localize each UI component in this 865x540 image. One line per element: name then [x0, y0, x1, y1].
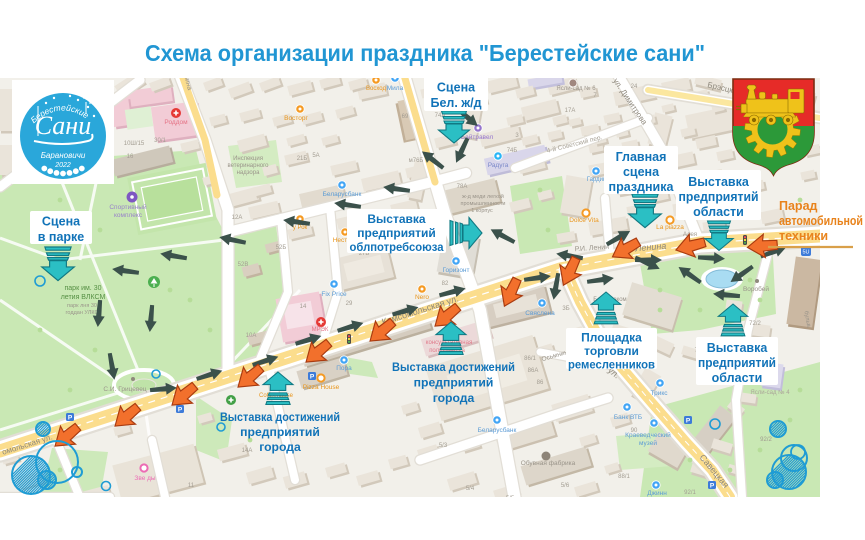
svg-text:69: 69 [402, 114, 409, 120]
svg-text:5/4: 5/4 [466, 486, 475, 492]
svg-text:29: 29 [346, 301, 353, 307]
svg-text:годдан УЛКС: годдан УЛКС [66, 310, 99, 316]
svg-text:24: 24 [631, 84, 638, 90]
svg-text:Сцена: Сцена [42, 215, 81, 229]
svg-text:78А: 78А [457, 184, 468, 190]
svg-text:Ясли-сад № 6: Ясли-сад № 6 [556, 85, 596, 92]
svg-text:комплекс: комплекс [114, 212, 143, 219]
svg-text:надзора: надзора [237, 170, 261, 176]
svg-text:города: города [259, 440, 301, 454]
svg-text:области: области [712, 371, 763, 385]
svg-text:Свяслена: Свяслена [525, 310, 555, 317]
svg-text:Воробей: Воробей [743, 285, 769, 293]
svg-text:промышленности: промышленности [461, 201, 506, 207]
svg-text:Выставка достижений: Выставка достижений [392, 360, 515, 374]
svg-text:Выставка: Выставка [707, 341, 769, 355]
svg-text:Схема организации праздника "Б: Схема организации праздника "Берестейски… [145, 40, 705, 66]
svg-text:74Б: 74Б [507, 148, 518, 154]
svg-text:автомобильной: автомобильной [779, 214, 863, 228]
svg-text:5А: 5А [312, 153, 319, 159]
svg-text:21Б: 21Б [297, 156, 308, 162]
svg-text:2022: 2022 [54, 162, 71, 169]
svg-text:P: P [710, 483, 715, 490]
svg-text:72/2: 72/2 [749, 321, 761, 327]
svg-text:Трикс: Трикс [650, 390, 668, 397]
svg-text:86: 86 [537, 380, 544, 386]
svg-text:17А: 17А [565, 108, 576, 114]
svg-text:Nero: Nero [415, 294, 429, 301]
svg-text:52Б: 52Б [276, 245, 287, 251]
svg-text:ветеринарного: ветеринарного [228, 163, 270, 169]
svg-text:Восторг: Восторг [284, 115, 308, 122]
svg-text:Выставка: Выставка [367, 212, 426, 226]
svg-text:праздника: праздника [609, 180, 675, 194]
svg-text:1 корпус: 1 корпус [471, 208, 493, 214]
svg-text:Барановичи: Барановичи [41, 151, 86, 160]
svg-text:P: P [310, 374, 315, 381]
svg-text:Обувная фабрика: Обувная фабрика [521, 459, 576, 467]
svg-text:предприятий: предприятий [240, 425, 320, 439]
svg-text:Сани: Сани [35, 111, 91, 140]
svg-text:Пора: Пора [336, 365, 352, 372]
svg-text:14: 14 [300, 304, 307, 310]
svg-text:торговли: торговли [584, 344, 639, 358]
svg-text:облпотребсоюза: облпотребсоюза [350, 240, 444, 254]
svg-text:52В: 52В [238, 262, 249, 268]
svg-text:3Б: 3Б [562, 306, 569, 312]
svg-text:Сцена: Сцена [437, 81, 476, 95]
svg-text:5/3: 5/3 [439, 443, 448, 449]
svg-text:P: P [178, 407, 183, 414]
svg-text:Радуга: Радуга [488, 162, 509, 169]
svg-text:Выставка: Выставка [688, 175, 750, 189]
svg-text:P: P [686, 418, 691, 425]
svg-text:Джинн: Джинн [647, 490, 667, 497]
svg-text:предприятий: предприятий [357, 226, 435, 240]
svg-text:11: 11 [188, 483, 195, 489]
svg-text:Fix Price: Fix Price [321, 291, 347, 298]
svg-text:в парке: в парке [38, 230, 85, 244]
svg-text:Мила: Мила [387, 85, 404, 92]
svg-text:предприятий: предприятий [679, 190, 759, 204]
svg-text:30/1: 30/1 [154, 138, 166, 144]
svg-text:Роддом: Роддом [164, 119, 188, 126]
svg-text:ж-д меди легкой: ж-д меди легкой [462, 193, 504, 200]
svg-text:Горизонт: Горизонт [442, 267, 469, 274]
svg-text:ремесленников: ремесленников [568, 357, 655, 371]
svg-text:12А: 12А [232, 215, 243, 221]
svg-text:Восход: Восход [366, 86, 386, 92]
svg-text:16: 16 [127, 154, 134, 160]
svg-text:Алея: Алея [683, 232, 697, 238]
svg-text:Беларусбанк: Беларусбанк [478, 426, 517, 434]
svg-text:м76Б: м76Б [409, 158, 424, 164]
svg-text:Площадка: Площадка [581, 330, 642, 344]
svg-text:Dolce Vita: Dolce Vita [569, 217, 599, 224]
svg-text:Бел. ж/д: Бел. ж/д [430, 96, 481, 110]
svg-text:Выставка достижений: Выставка достижений [220, 410, 340, 424]
svg-text:сцена: сцена [623, 165, 660, 179]
svg-text:области: области [693, 205, 744, 219]
svg-text:города: города [433, 391, 475, 405]
svg-text:88/1: 88/1 [618, 474, 630, 480]
svg-text:5U: 5U [802, 250, 809, 256]
svg-text:Инспекция: Инспекция [233, 156, 263, 162]
svg-text:предприятий: предприятий [698, 356, 776, 370]
svg-text:10Ш/15: 10Ш/15 [124, 141, 145, 147]
svg-text:Беларусбанк: Беларусбанк [323, 190, 362, 198]
svg-text:82: 82 [442, 281, 449, 287]
svg-text:техники: техники [779, 229, 828, 243]
svg-text:Парад: Парад [779, 199, 818, 213]
svg-text:предприятий: предприятий [414, 376, 494, 390]
svg-text:86/1: 86/1 [524, 356, 536, 362]
svg-text:у Рок: у Рок [293, 225, 308, 231]
svg-text:Ясли-сад № 4: Ясли-сад № 4 [750, 389, 790, 396]
svg-text:Pizza House: Pizza House [303, 384, 340, 391]
svg-text:92/1: 92/1 [684, 490, 696, 496]
svg-text:музей: музей [639, 439, 657, 447]
svg-text:P: P [68, 415, 73, 422]
svg-text:МРЭК: МРЭК [312, 327, 329, 333]
svg-text:Главная: Главная [616, 150, 667, 164]
svg-text:10А: 10А [246, 333, 257, 339]
svg-text:С.И. Грицевец: С.И. Грицевец [103, 386, 146, 393]
svg-text:Зве ды: Зве ды [134, 475, 156, 482]
svg-text:Банк ВТБ: Банк ВТБ [614, 414, 642, 421]
svg-text:парк им. 30: парк им. 30 [65, 285, 102, 292]
svg-text:90: 90 [631, 428, 638, 434]
svg-text:La piazza: La piazza [656, 224, 684, 231]
svg-text:86А: 86А [528, 368, 539, 374]
svg-text:5/6: 5/6 [561, 483, 570, 489]
svg-text:14А: 14А [242, 448, 253, 454]
svg-text:парк лня 30: парк лня 30 [67, 303, 97, 309]
svg-text:92/2: 92/2 [760, 437, 772, 443]
svg-text:Спортивный: Спортивный [109, 203, 147, 211]
